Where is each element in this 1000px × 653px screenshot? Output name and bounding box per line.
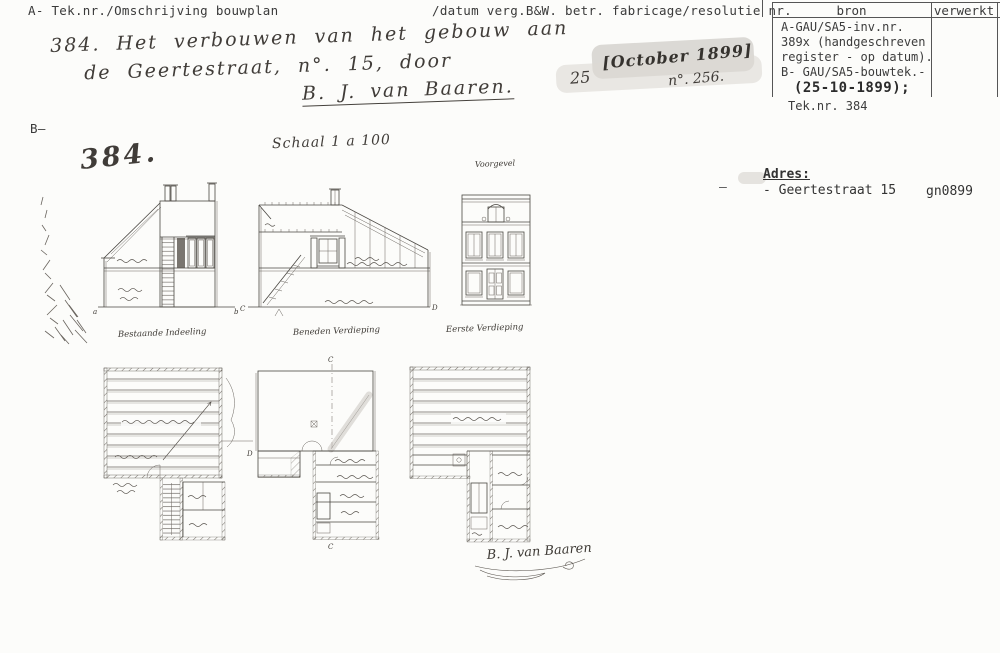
- column-header-right: /datum verg.B&W. betr. fabricage/resolut…: [432, 3, 792, 18]
- table-header-verwerkt: verwerkt: [931, 3, 997, 18]
- entry-builder-name: B. J. van Baaren.: [302, 75, 515, 106]
- plan-bestaande-indeeling: [104, 368, 253, 540]
- source-line: A-GAU/SA5-inv.nr.: [781, 20, 904, 36]
- section-mark-c: C: [240, 305, 246, 313]
- source-line: 389x (handgeschreven: [781, 35, 926, 51]
- plan-first-label: Eerste Verdieping: [445, 322, 524, 335]
- adres-label: Adres:: [763, 167, 810, 182]
- section-mark-d: D: [431, 304, 438, 312]
- margin-dash: —: [719, 180, 727, 195]
- plan-ground-label: Beneden Verdieping: [292, 325, 381, 338]
- plan-existing-label: Bestaande Indeeling: [117, 327, 207, 340]
- plan-beneden-verdieping: C D C: [246, 356, 379, 551]
- table-header-bron: bron: [772, 3, 931, 18]
- column-header-left: A- Tek.nr./Omschrijving bouwplan: [28, 3, 278, 18]
- teknr-line: Tek.nr. 384: [788, 99, 867, 115]
- adres-street: - Geertestraat 15: [763, 183, 896, 198]
- archive-code: gn0899: [926, 184, 973, 199]
- section-b-marker: B—: [30, 121, 46, 136]
- margin-scribbles: [41, 197, 87, 344]
- source-line: register - op datum).: [781, 50, 933, 66]
- building-drawing: a b C D: [25, 135, 605, 595]
- entry-resolutie-nr: n°. 256.: [667, 69, 724, 90]
- plan-eerste-verdieping: [410, 367, 530, 542]
- voorgevel-elevation: Voorgevel: [460, 159, 532, 305]
- entry-day: 25: [569, 67, 591, 87]
- bouwtek-date: (25-10-1899);: [794, 80, 910, 96]
- table-border-right: [997, 2, 998, 97]
- source-line: B- GAU/SA5-bouwtek.-: [781, 65, 926, 81]
- section-mark-b: b: [234, 308, 239, 316]
- plan-mark-d: D: [246, 450, 253, 458]
- entry-description-line1: 384. Het verbouwen van het gebouw aan: [50, 17, 569, 57]
- pencil-smudge-adres: [738, 172, 766, 184]
- signature-flourish: B. J. van Baaren: [475, 541, 592, 580]
- plan-mark-c-top: C: [328, 356, 334, 364]
- plan-mark-c-bottom: C: [328, 543, 334, 551]
- section-mark-a: a: [93, 308, 97, 316]
- voorgevel-label: Voorgevel: [475, 159, 516, 169]
- scanned-archive-card: A- Tek.nr./Omschrijving bouwplan /datum …: [0, 0, 1000, 653]
- section-cd: C D: [240, 189, 438, 316]
- section-ab: a b: [93, 183, 239, 316]
- divider-line: [762, 0, 763, 17]
- signature-text: B. J. van Baaren: [485, 541, 592, 563]
